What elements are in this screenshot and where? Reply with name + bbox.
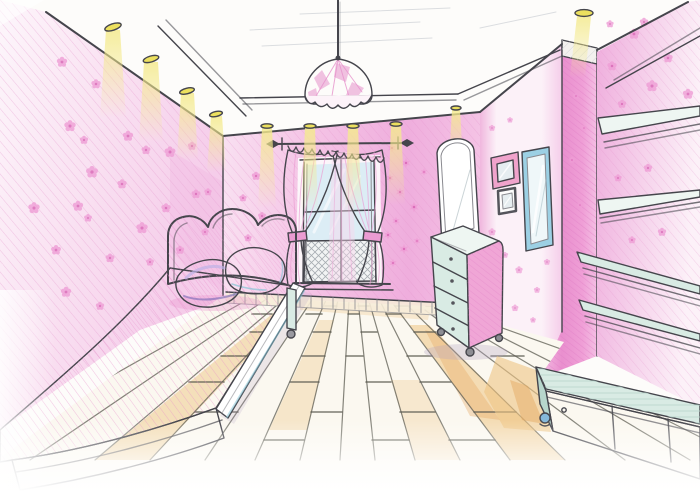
- downlight: [451, 106, 461, 110]
- window-sill: [294, 283, 390, 284]
- downlight: [575, 10, 593, 17]
- downlight: [261, 124, 273, 128]
- curtain-rod: [274, 143, 406, 144]
- small-dark-frame: [498, 188, 516, 214]
- blue-wall-mirror: [522, 147, 553, 251]
- downlight: [304, 124, 316, 128]
- bed-leg: [287, 288, 296, 330]
- downlight: [390, 122, 402, 126]
- pillow-shadow: [169, 295, 261, 311]
- bedroom-sketch-page: [0, 0, 700, 492]
- downlight: [347, 124, 359, 128]
- bedroom-sketch: [0, 0, 700, 492]
- pink-picture-frame: [491, 152, 520, 189]
- right-curtain-tieback: [363, 231, 382, 242]
- bed-caster: [287, 330, 295, 338]
